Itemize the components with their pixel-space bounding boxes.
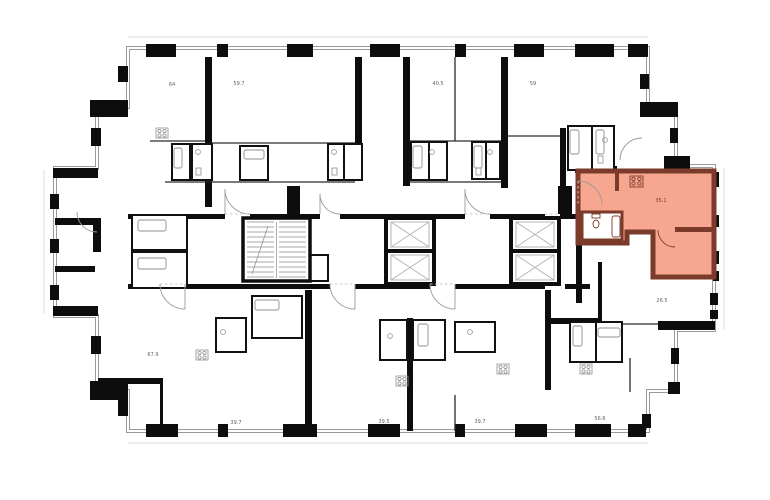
unit-area-label: 56.6	[594, 416, 605, 422]
staircase	[243, 218, 310, 281]
bathtub-icon	[474, 146, 482, 168]
bathtub-icon	[418, 324, 428, 346]
bathtub-icon	[174, 148, 182, 168]
unit-area-label-highlighted: 35.1	[655, 198, 666, 204]
bathtub-icon	[570, 130, 579, 154]
unit-area-label: 26.5	[656, 298, 667, 304]
bathtub-icon	[255, 300, 279, 310]
bathtub-icon	[413, 146, 422, 168]
unit-area-label: 40.5	[432, 81, 443, 87]
unit-area-label: 67.9	[147, 352, 158, 358]
unit-area-label: 59	[530, 81, 536, 87]
bathtub-icon	[138, 258, 166, 269]
unit-area-label: 64	[169, 82, 175, 88]
floorplan-page: 64 59.7 40.5 59 35.1 26.5 67.9 39.7 39.5…	[0, 0, 770, 500]
bathtub-icon	[573, 326, 582, 346]
elevator-bank-right	[511, 218, 559, 284]
unit-area-label: 39.5	[378, 419, 389, 425]
bathtub-icon	[244, 150, 264, 159]
unit-area-label: 39.7	[474, 419, 485, 425]
floor-plan-canvas: 64 59.7 40.5 59 35.1 26.5 67.9 39.7 39.5…	[0, 0, 770, 500]
bathtub-icon	[138, 220, 166, 231]
unit-area-label: 59.7	[233, 81, 244, 87]
elevator-bank-left	[386, 218, 434, 284]
bathtub-icon	[596, 130, 604, 154]
unit-area-label: 39.7	[230, 420, 241, 426]
bathtub-icon	[598, 328, 620, 337]
